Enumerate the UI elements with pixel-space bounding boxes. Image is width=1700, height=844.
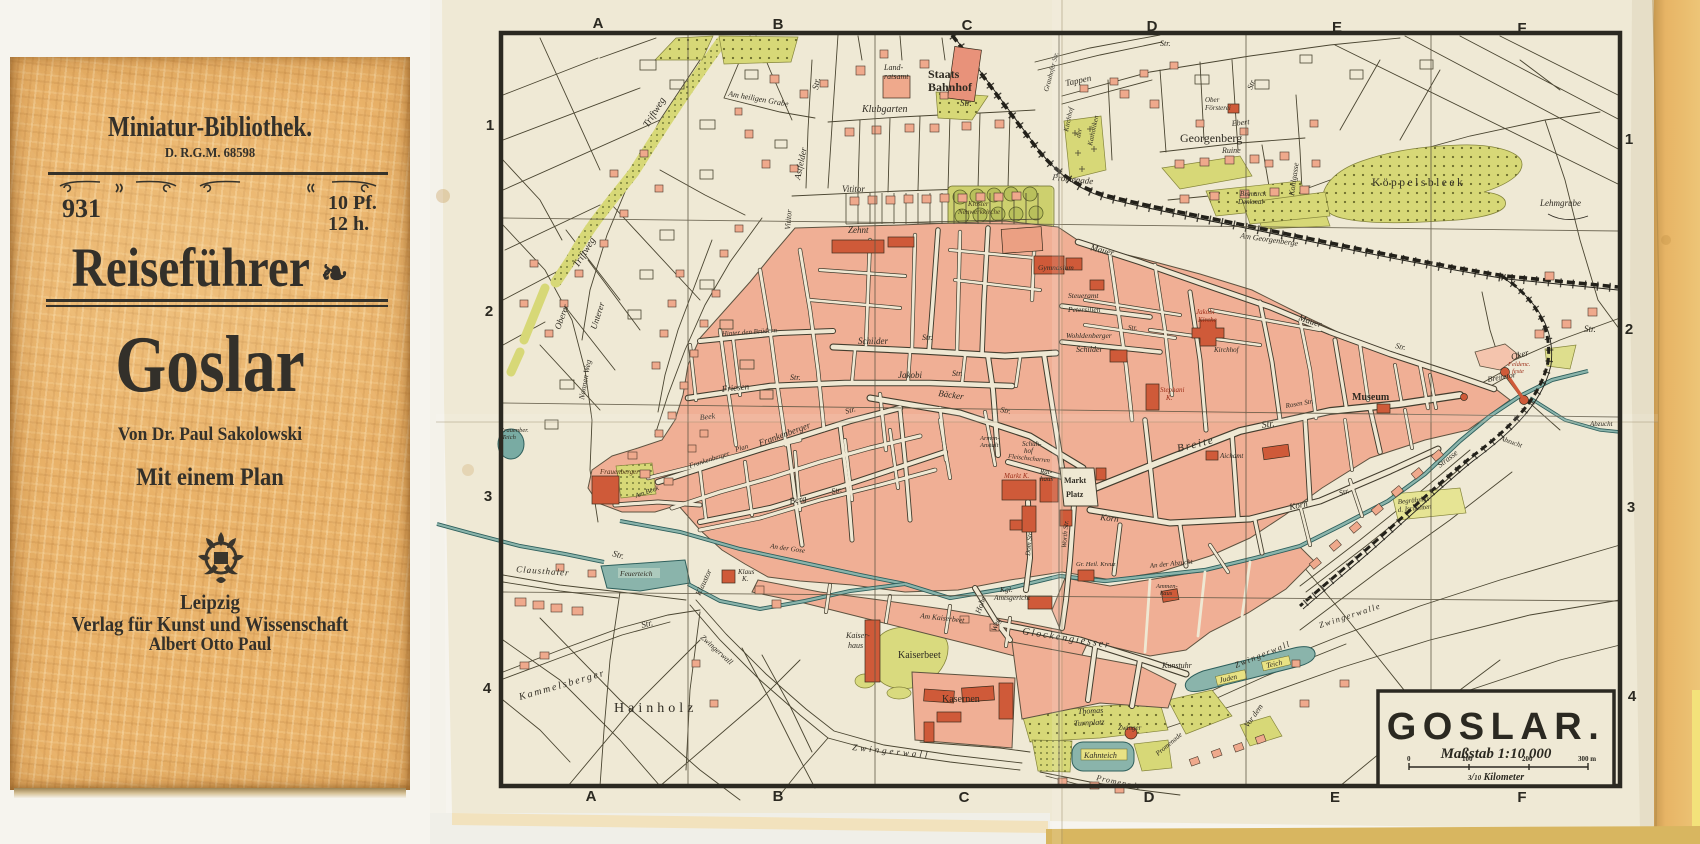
svg-text:Steueramt: Steueramt bbox=[1068, 291, 1099, 300]
svg-text:Str.: Str. bbox=[922, 333, 932, 342]
svg-text:Schilder: Schilder bbox=[858, 336, 888, 346]
svg-text:Str.: Str. bbox=[952, 369, 962, 378]
svg-text:Kaiser-: Kaiser- bbox=[845, 631, 870, 640]
svg-text:Str.: Str. bbox=[1584, 324, 1596, 334]
svg-text:D: D bbox=[1147, 18, 1158, 35]
svg-text:1: 1 bbox=[486, 117, 494, 134]
svg-text:Vititor: Vititor bbox=[783, 208, 794, 230]
svg-text:E: E bbox=[1330, 789, 1340, 806]
svg-text:Frauenber.: Frauenber. bbox=[499, 427, 529, 434]
svg-text:2: 2 bbox=[1625, 321, 1633, 338]
svg-text:A: A bbox=[593, 15, 604, 32]
svg-text:feste: feste bbox=[1512, 368, 1524, 375]
svg-text:K.: K. bbox=[1165, 394, 1173, 402]
svg-text:Bismarck: Bismarck bbox=[1240, 190, 1267, 198]
svg-text:ratsamt: ratsamt bbox=[884, 72, 909, 81]
svg-text:F: F bbox=[1517, 20, 1526, 37]
svg-text:Lehmgrube: Lehmgrube bbox=[1539, 198, 1581, 208]
svg-text:B: B bbox=[773, 16, 784, 33]
svg-text:Amtsgericht: Amtsgericht bbox=[993, 593, 1031, 602]
svg-text:Kirchhof: Kirchhof bbox=[1213, 346, 1240, 354]
svg-text:Markt K.: Markt K. bbox=[1003, 472, 1030, 480]
svg-text:Klubgarten: Klubgarten bbox=[861, 104, 908, 115]
svg-text:Kasernen: Kasernen bbox=[942, 694, 980, 705]
svg-text:haus: haus bbox=[848, 641, 863, 650]
svg-text:Försterei: Försterei bbox=[1204, 104, 1231, 112]
svg-text:B: B bbox=[773, 788, 784, 805]
svg-text:100: 100 bbox=[1462, 755, 1473, 763]
svg-text:Teich: Teich bbox=[502, 434, 516, 441]
svg-text:Land-: Land- bbox=[883, 63, 903, 72]
svg-text:3: 3 bbox=[1627, 499, 1635, 516]
svg-text:Museum: Museum bbox=[1352, 392, 1390, 403]
svg-text:Armen-: Armen- bbox=[979, 435, 1000, 442]
svg-text:Korn: Korn bbox=[1099, 512, 1120, 524]
svg-text:Denkmal: Denkmal bbox=[1237, 198, 1263, 206]
svg-text:Jakobi: Jakobi bbox=[898, 370, 922, 380]
svg-text:Kaiserbeet: Kaiserbeet bbox=[898, 650, 941, 661]
svg-text:Staats: Staats bbox=[928, 67, 960, 81]
svg-text:Str.: Str. bbox=[790, 373, 800, 382]
svg-text:Anstalt: Anstalt bbox=[979, 442, 999, 449]
svg-text:Jakobi: Jakobi bbox=[1196, 308, 1215, 316]
svg-text:300 m: 300 m bbox=[1578, 755, 1596, 763]
svg-text:Maßstab 1:10 000: Maßstab 1:10 000 bbox=[1440, 746, 1552, 762]
svg-text:Georgenberg: Georgenberg bbox=[1180, 131, 1242, 145]
svg-text:3: 3 bbox=[484, 488, 492, 505]
svg-text:Str.: Str. bbox=[810, 77, 822, 90]
svg-text:D: D bbox=[1144, 789, 1155, 806]
svg-text:Ruine: Ruine bbox=[1221, 146, 1241, 155]
svg-text:Thomas: Thomas bbox=[1078, 706, 1104, 716]
svg-text:Markt: Markt bbox=[1064, 476, 1087, 485]
svg-text:A: A bbox=[586, 788, 597, 805]
svg-text:Schilder: Schilder bbox=[1076, 345, 1104, 354]
svg-text:Kunstuhr: Kunstuhr bbox=[1161, 661, 1193, 670]
svg-text:Str.: Str. bbox=[960, 98, 972, 108]
svg-text:4: 4 bbox=[483, 680, 492, 697]
svg-text:Gr. Heil. Kreuz: Gr. Heil. Kreuz bbox=[1076, 561, 1116, 568]
svg-text:Ober: Ober bbox=[1205, 96, 1220, 104]
svg-text:Aichamt: Aichamt bbox=[1219, 452, 1244, 460]
svg-text:Wohldenberger: Wohldenberger bbox=[1066, 331, 1112, 340]
svg-text:Str.: Str. bbox=[1160, 39, 1170, 48]
svg-text:2: 2 bbox=[485, 303, 493, 320]
svg-text:E: E bbox=[1332, 19, 1342, 36]
svg-text:K.: K. bbox=[741, 575, 749, 583]
svg-text:Hainholz: Hainholz bbox=[614, 701, 697, 716]
svg-text:Petersilien: Petersilien bbox=[1067, 305, 1101, 314]
svg-text:Ammen-: Ammen- bbox=[1155, 583, 1178, 590]
svg-text:haus: haus bbox=[1040, 475, 1054, 483]
svg-text:GOSLAR.: GOSLAR. bbox=[1387, 706, 1606, 748]
svg-text:Feldenc.: Feldenc. bbox=[1507, 361, 1531, 368]
svg-text:Frauenberger: Frauenberger bbox=[599, 468, 639, 476]
svg-text:3/10 Kilometer: 3/10 Kilometer bbox=[1467, 772, 1524, 783]
svg-text:Kloster: Kloster bbox=[967, 200, 989, 208]
svg-text:Köppelsbleek: Köppelsbleek bbox=[1372, 177, 1465, 189]
svg-text:Platz: Platz bbox=[1066, 490, 1084, 499]
svg-text:C: C bbox=[962, 17, 973, 34]
svg-text:hof: hof bbox=[1024, 447, 1034, 455]
svg-text:Kirche: Kirche bbox=[1197, 316, 1217, 324]
svg-text:Str.: Str. bbox=[1128, 324, 1137, 332]
svg-text:Zehnt: Zehnt bbox=[848, 225, 869, 235]
svg-text:4: 4 bbox=[1628, 688, 1637, 705]
svg-text:1: 1 bbox=[1625, 131, 1633, 148]
svg-text:200: 200 bbox=[1522, 755, 1533, 763]
svg-text:F: F bbox=[1517, 789, 1526, 806]
svg-text:Vititor: Vititor bbox=[842, 184, 865, 194]
svg-text:0: 0 bbox=[1407, 755, 1411, 763]
svg-text:Feuerteich: Feuerteich bbox=[619, 569, 653, 578]
svg-text:Kahnteich: Kahnteich bbox=[1083, 751, 1117, 760]
svg-text:haus: haus bbox=[1160, 590, 1173, 597]
svg-text:C: C bbox=[959, 789, 970, 806]
svg-text:Bahnhof: Bahnhof bbox=[928, 80, 973, 94]
svg-text:Stephani: Stephani bbox=[1160, 386, 1185, 394]
svg-text:Turnplatz: Turnplatz bbox=[1074, 717, 1106, 728]
svg-text:Neuwerkkirche: Neuwerkkirche bbox=[957, 208, 1000, 216]
svg-text:Zwinger: Zwinger bbox=[1118, 724, 1142, 732]
